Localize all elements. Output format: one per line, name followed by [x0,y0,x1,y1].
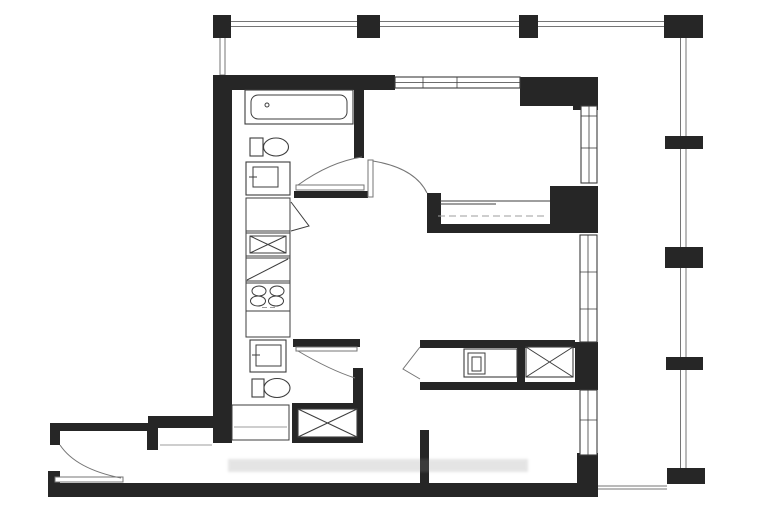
window-bedroom [581,106,597,183]
floor-plan-canvas [0,0,760,505]
balcony-column-icon [666,357,703,370]
bathtub [245,90,353,124]
sink-vanity [250,340,286,372]
window-top [395,77,520,88]
window-living-lower [580,390,597,455]
balcony-column-icon [665,247,703,268]
bathroom-middle [250,340,357,398]
balcony-column-icon [213,15,231,38]
washer [464,349,517,377]
windows [395,77,597,455]
window-living-upper [580,235,597,342]
balcony-column-icon [664,15,703,38]
bathroom-door [296,347,357,378]
bathroom-door [296,157,364,190]
floor-plan-drawing [0,0,760,505]
toilet [252,379,290,398]
laundry-door [403,347,420,379]
bedroom-closet [438,201,550,216]
wall-stub [420,430,429,483]
pantry-x-box [246,233,290,256]
sink-vanity [246,162,290,195]
balcony-column-icon [519,15,538,38]
cabinet-open-door [246,202,309,231]
balcony-column-icon [665,136,703,149]
diagonal-counter-cell [246,258,290,281]
watermark [228,459,528,472]
balcony-column-icon [667,468,705,484]
bathroom-top [245,90,364,195]
entry-door [55,445,123,482]
balcony-column-icon [357,15,380,38]
toilet [250,138,289,156]
laundry-x-box [526,347,573,377]
storage-x-box [298,409,357,437]
kitchen [246,198,309,337]
bedroom-door [368,160,427,197]
laundry-closet [403,347,573,379]
cooktop-icon [246,283,290,311]
hall-closet [232,405,289,440]
